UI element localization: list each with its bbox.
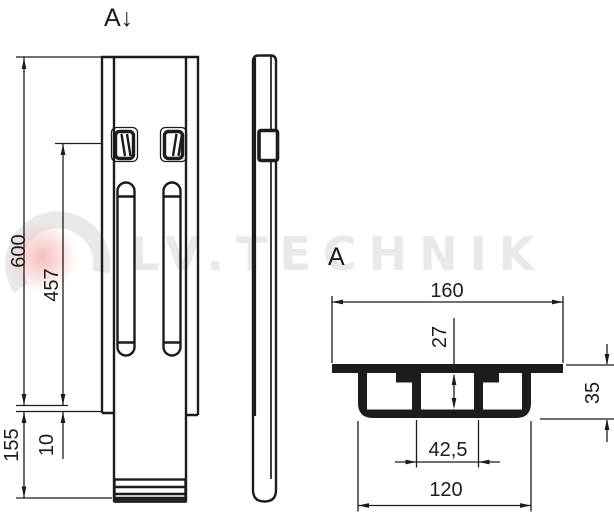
slot-body <box>118 183 135 356</box>
side-latch-detail <box>259 131 278 161</box>
dim-cell-inner-height: 27 <box>429 326 451 348</box>
section-view-label: A <box>328 243 345 271</box>
section-hook-right <box>483 373 499 383</box>
dim-total-length: 600 <box>8 234 30 267</box>
dim-bottom-section: 155 <box>1 428 23 461</box>
dim-channel-width: 120 <box>429 479 462 501</box>
slot-chords <box>164 197 181 343</box>
front-dimensions: 600 457 155 10 <box>1 57 112 498</box>
foot-ribs <box>115 487 185 494</box>
section-view <box>332 364 563 418</box>
slot-hatch <box>173 134 182 156</box>
dim-flange-width: 160 <box>430 280 463 302</box>
dim-profile-depth: 35 <box>582 382 604 404</box>
extension-lines <box>16 57 112 498</box>
slot-chords <box>118 197 135 343</box>
dim-center-cell-width: 42,5 <box>429 439 468 461</box>
slot-hatch <box>122 134 131 156</box>
lashing-slot-right <box>161 128 187 162</box>
section-flange <box>332 364 563 373</box>
lashing-slot-left <box>112 128 138 162</box>
section-hook-left <box>396 373 412 383</box>
front-foot <box>115 480 186 502</box>
side-view <box>253 56 278 502</box>
side-outline <box>253 56 276 502</box>
cut-mark-label: A↓ <box>104 4 133 32</box>
dim-step-offset: 10 <box>36 434 58 456</box>
front-inner-column <box>114 57 186 502</box>
technical-drawing-page: LV.TECHNIK <box>0 0 614 515</box>
long-slot-left <box>118 183 135 356</box>
section-cell-middle <box>421 373 474 410</box>
front-step-edges <box>102 413 198 415</box>
front-view <box>102 57 198 502</box>
long-slot-right <box>164 183 181 356</box>
slot-body <box>164 183 181 356</box>
dim-slot-center: 457 <box>41 268 63 301</box>
drawing-layer: 600 457 155 10 160 <box>0 0 614 515</box>
